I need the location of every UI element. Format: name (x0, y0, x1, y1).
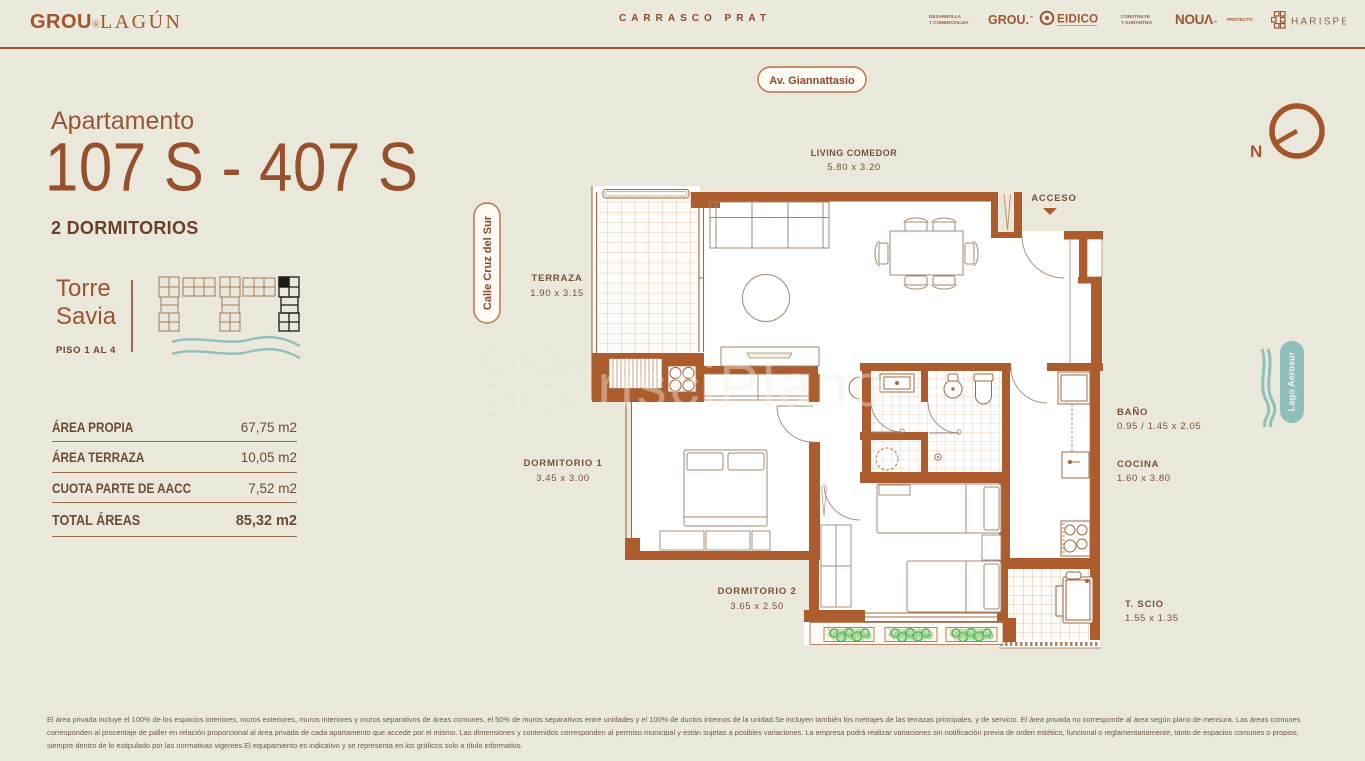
svg-text:ACCESO: ACCESO (1031, 193, 1076, 204)
svg-text:0.95 / 1.45 x 2.05: 0.95 / 1.45 x 2.05 (1117, 421, 1201, 432)
svg-text:1.55 x 1.35: 1.55 x 1.35 (1125, 613, 1179, 624)
svg-text:COCINA: COCINA (1117, 459, 1159, 470)
svg-text:3.45 x 3.00: 3.45 x 3.00 (536, 473, 590, 484)
svg-text:LIVING COMEDOR: LIVING COMEDOR (811, 148, 898, 158)
svg-text:Lago Aerosur: Lago Aerosur (1287, 351, 1297, 411)
svg-text:3.65 x 2.50: 3.65 x 2.50 (730, 601, 784, 612)
svg-text:T. SCIO: T. SCIO (1125, 599, 1164, 610)
svg-text:DORMITORIO 1: DORMITORIO 1 (523, 458, 602, 469)
svg-text:N: N (1250, 142, 1262, 161)
svg-text:TERRAZA: TERRAZA (532, 273, 583, 284)
svg-text:1.60 x 3.80: 1.60 x 3.80 (1117, 473, 1171, 484)
svg-text:1.90 x 3.15: 1.90 x 3.15 (530, 288, 584, 299)
svg-text:Av. Giannattasio: Av. Giannattasio (769, 75, 855, 87)
svg-text:5.80 x 3.20: 5.80 x 3.20 (827, 162, 881, 173)
svg-text:CrisciPlano: CrisciPlano (551, 352, 887, 419)
svg-text:Calle Cruz del Sur: Calle Cruz del Sur (482, 215, 494, 310)
svg-text:HARISPE: HARISPE (1291, 17, 1346, 28)
svg-text:BAÑO: BAÑO (1117, 407, 1148, 418)
svg-text:EIDICO: EIDICO (1057, 14, 1098, 26)
svg-text:DORMITORIO 2: DORMITORIO 2 (717, 586, 796, 597)
